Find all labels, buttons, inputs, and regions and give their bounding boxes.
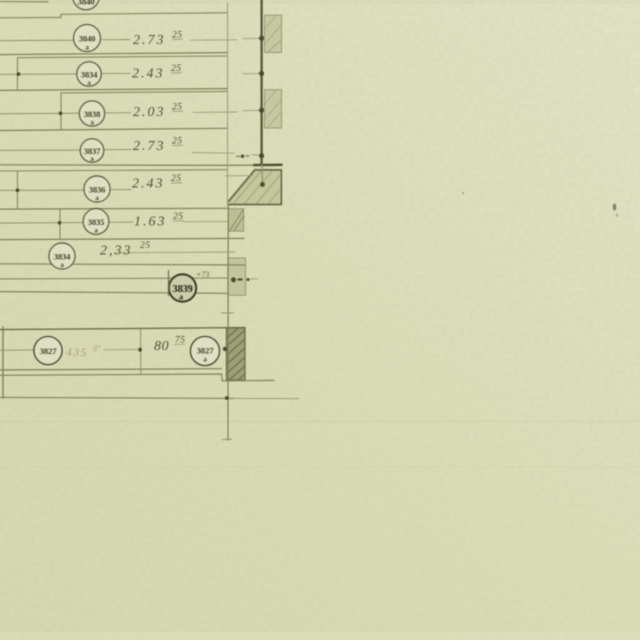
svg-text:3834: 3834: [54, 252, 71, 262]
svg-text:3838: 3838: [84, 109, 101, 119]
svg-text:3827: 3827: [40, 346, 58, 356]
svg-text:+73: +73: [196, 270, 209, 279]
svg-text:3835: 3835: [88, 217, 104, 227]
svg-text:2.03: 2.03: [133, 105, 166, 120]
svg-text:1.63: 1.63: [134, 215, 167, 230]
svg-text:3827: 3827: [197, 346, 215, 356]
svg-text:3840: 3840: [79, 34, 95, 44]
svg-text:2.73: 2.73: [133, 33, 166, 48]
svg-text:2.43: 2.43: [132, 67, 165, 82]
svg-text:435: 435: [66, 347, 88, 359]
svg-text:2.43: 2.43: [132, 177, 165, 192]
svg-text:3836: 3836: [89, 185, 106, 195]
svg-text:8°: 8°: [93, 343, 101, 353]
svg-text:3840: 3840: [77, 0, 95, 7]
svg-text:80: 80: [154, 339, 169, 354]
svg-text:2,33: 2,33: [100, 244, 133, 259]
svg-text:2.73: 2.73: [133, 139, 166, 154]
svg-text:25: 25: [140, 241, 151, 251]
svg-text:3834: 3834: [81, 70, 98, 80]
